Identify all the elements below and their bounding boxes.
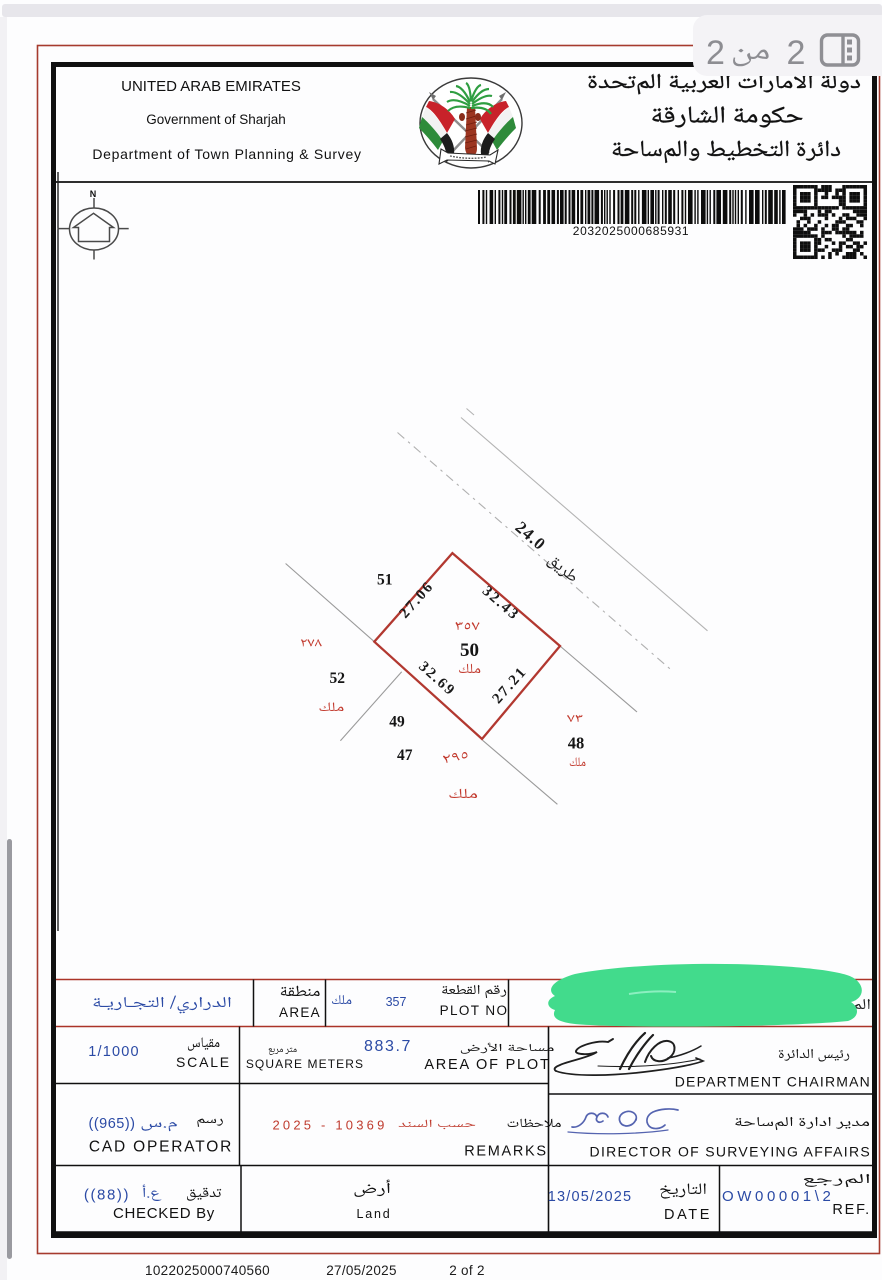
svg-text:UNITED ARAB EMIRATES: UNITED ARAB EMIRATES [121,78,301,95]
svg-text:48: 48 [568,734,585,753]
svg-text:2: 2 [706,34,725,72]
svg-text:((965)): ((965)) [88,1116,135,1132]
svg-text:52: 52 [330,670,346,687]
svg-text:REF.: REF. [832,1202,871,1218]
svg-text:OW00001\2: OW00001\2 [722,1188,834,1205]
svg-text:2032025000685931: 2032025000685931 [573,224,689,238]
svg-text:51: 51 [377,572,393,589]
svg-text:AREA OF PLOT: AREA OF PLOT [424,1057,550,1073]
svg-text:2025 - 10369: 2025 - 10369 [272,1118,387,1133]
svg-text:2: 2 [787,34,806,72]
svg-text:DEPARTMENT CHAIRMAN: DEPARTMENT CHAIRMAN [675,1074,871,1090]
svg-text:((88)): ((88)) [84,1187,130,1204]
svg-text:27/05/2025: 27/05/2025 [326,1263,397,1278]
svg-text:2 of 2: 2 of 2 [449,1263,485,1278]
svg-text:DATE: DATE [664,1207,712,1223]
svg-text:1022025000740560: 1022025000740560 [145,1263,270,1278]
svg-text:SQUARE METERS: SQUARE METERS [246,1057,364,1071]
svg-text:DIRECTOR OF SURVEYING AFFAIRS: DIRECTOR OF SURVEYING AFFAIRS [590,1144,871,1160]
svg-text:N: N [90,189,97,199]
svg-text:49: 49 [389,714,405,731]
svg-text:SCALE: SCALE [176,1054,231,1070]
svg-text:REMARKS: REMARKS [464,1144,548,1160]
svg-text:Department of Town Planning &: Department of Town Planning & Survey [92,146,361,162]
svg-text:CAD OPERATOR: CAD OPERATOR [89,1139,233,1156]
svg-text:1/1000: 1/1000 [88,1044,140,1060]
svg-text:CHECKED By: CHECKED By [113,1205,215,1222]
svg-text:Government of Sharjah: Government of Sharjah [146,112,286,127]
svg-text:PLOT NO: PLOT NO [440,1003,509,1018]
svg-text:883.7: 883.7 [364,1038,412,1055]
svg-text:47: 47 [397,747,413,764]
svg-text:50: 50 [460,640,479,661]
svg-text:357: 357 [386,995,407,1009]
svg-text:Land: Land [356,1207,391,1221]
svg-text:13/05/2025: 13/05/2025 [548,1189,633,1205]
svg-text:AREA: AREA [279,1005,321,1020]
